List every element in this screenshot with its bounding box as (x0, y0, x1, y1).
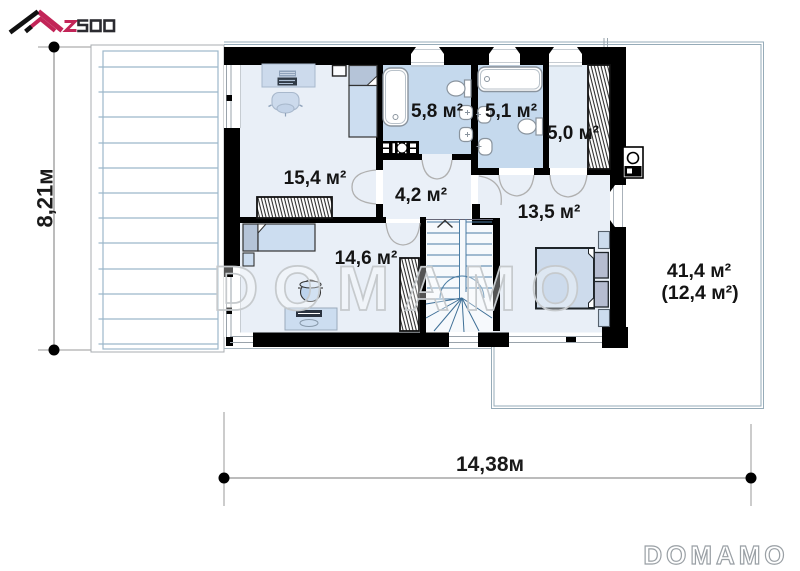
svg-text:14,6 м²: 14,6 м² (335, 248, 398, 269)
svg-text:(12,4 м²): (12,4 м²) (661, 282, 738, 304)
svg-text:4,2 м²: 4,2 м² (395, 185, 447, 206)
svg-text:5,8 м²: 5,8 м² (411, 101, 463, 122)
svg-text:8,21м: 8,21м (33, 168, 58, 227)
svg-text:13,5 м²: 13,5 м² (518, 202, 581, 223)
svg-text:DOMAMO: DOMAMO (643, 540, 788, 570)
svg-text:5,0 м²: 5,0 м² (547, 123, 599, 144)
svg-text:15,4 м²: 15,4 м² (284, 168, 347, 189)
svg-text:DOMAMO: DOMAMO (213, 254, 593, 324)
svg-text:5,1 м²: 5,1 м² (485, 101, 537, 122)
svg-text:41,4 м²: 41,4 м² (667, 260, 732, 282)
svg-text:14,38м: 14,38м (456, 453, 524, 476)
